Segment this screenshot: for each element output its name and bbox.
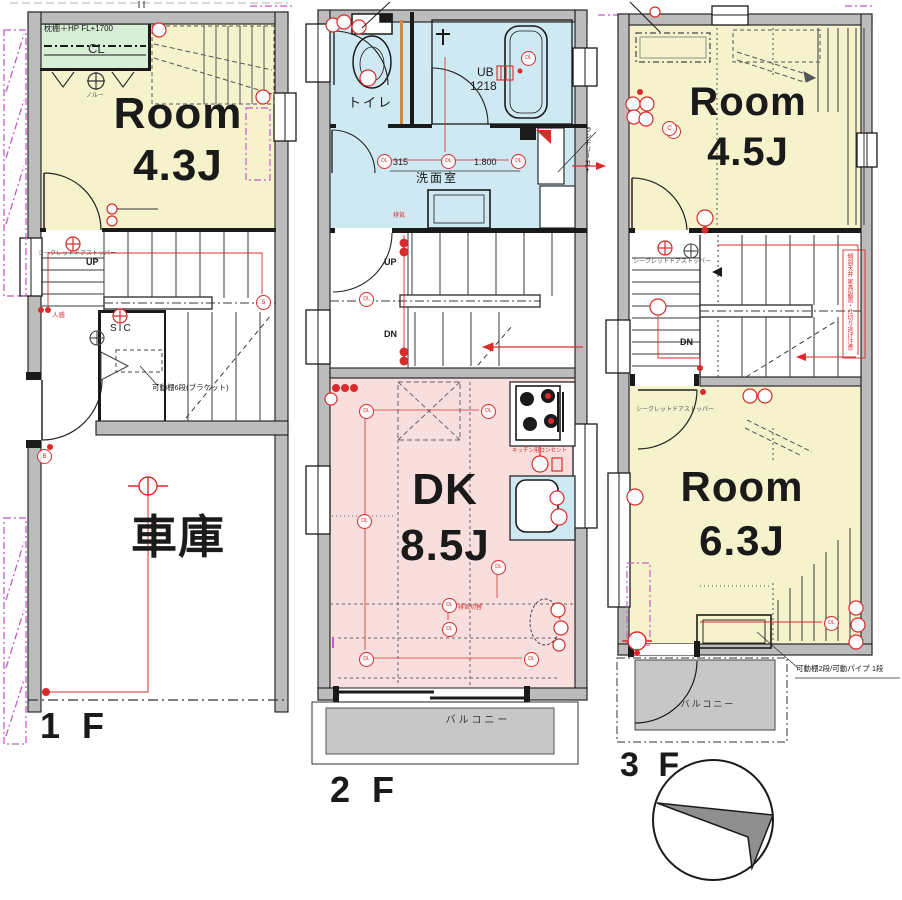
closet-label: CL (88, 42, 105, 55)
downlight-icon: DL (359, 404, 374, 419)
downlight-icon: DL (511, 154, 526, 169)
downlight-icon: DL (442, 598, 457, 613)
movable-shelf-note-3f: 可動棚2段/可動パイプ 1段 (796, 665, 884, 673)
sic-label: SIC (110, 324, 133, 334)
room-3f-upper-name: Room (638, 82, 858, 122)
balcony-3f-label: バルコニー (658, 700, 758, 709)
downlight-icon: DL (824, 616, 839, 631)
floor-label-1f: 1 F (40, 708, 110, 744)
dk-name: DK (340, 468, 550, 512)
exhaust-switch-note: 排気切替 (458, 605, 482, 611)
downlight-icon: DL (491, 560, 506, 575)
kitchen-outlet-note: キッチン用コンセント (512, 449, 567, 455)
dk-size: 8.5J (340, 524, 550, 568)
dim-1800: 1.800 (474, 158, 497, 167)
closet-shelf-note: 枕棚＋HP FL+1700 (44, 25, 113, 33)
balcony-2f-label: バルコニー (398, 716, 558, 726)
toilet-label: トイレ (348, 96, 393, 109)
floorplan-page: Room 4.3J 車庫 DK 8.5J Room 4.5J Room 6.3J… (0, 0, 902, 900)
room-3f-lower-size: 6.3J (632, 520, 852, 562)
downlight-icon: DL (524, 652, 539, 667)
mark-5-icon: 5 (256, 295, 271, 310)
movable-shelf-note-1f: 可動棚6段(ブラケット) (152, 384, 229, 392)
sloped-ceiling-note: 傾斜天井 家具設置・仕切り逃げ注意 (846, 253, 852, 355)
door-stopper-note-3f-upper: シークレットドアストッパー (633, 259, 711, 265)
door-stopper-note-1f: シークレットドアストッパー (38, 251, 116, 257)
downlight-icon: DL (441, 154, 456, 169)
downlight-icon: DL (359, 652, 374, 667)
dn-label-2f: DN (384, 330, 397, 339)
dim-315: 315 (393, 158, 408, 167)
room-3f-lower-name: Room (632, 466, 852, 508)
mark-c-icon: C (662, 121, 677, 136)
floor-2f-plan (306, 2, 606, 764)
motion-sensor-note: 人感 (52, 313, 65, 320)
dn-label-3f: DN (680, 338, 693, 347)
washroom-label: 洗面室 (416, 172, 458, 184)
door-stopper-note-3f-lower: シークレットドアストッパー (636, 407, 714, 413)
mark-b-icon: B (37, 449, 52, 464)
downlight-icon: DL (359, 292, 374, 307)
downlight-icon: DL (377, 154, 392, 169)
floor-label-2f: 2 F (330, 772, 400, 808)
stairs-1f (41, 232, 276, 421)
sic-shelf (101, 350, 162, 386)
stove-icon (516, 386, 563, 440)
garage-light-icon (128, 477, 168, 495)
downlight-icon: DL (357, 514, 372, 529)
floor-label-3f: 3 F (620, 748, 684, 782)
room-1f-size: 4.3J (68, 144, 288, 188)
unit-bath-name: UB (477, 66, 494, 78)
laundry-note: ランドリー FL+ (583, 126, 590, 182)
downlight-icon: DL (442, 622, 457, 637)
exhaust-note: 排気 (393, 213, 405, 219)
downlight-icon: DL (481, 404, 496, 419)
hanger-note: ノルー (86, 93, 104, 99)
up-label-1f: UP (86, 258, 99, 267)
unit-bath-size: 1218 (470, 80, 497, 92)
garage-label: 車庫 (68, 514, 288, 560)
downlight-icon: DL (521, 51, 536, 66)
up-label-2f: UP (384, 258, 397, 267)
